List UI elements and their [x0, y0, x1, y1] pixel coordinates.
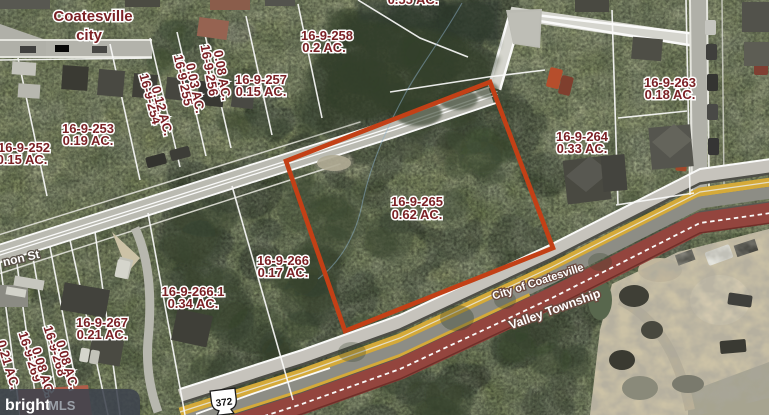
svg-text:0.33 AC.: 0.33 AC. — [557, 141, 608, 156]
svg-text:0.2 AC.: 0.2 AC. — [302, 40, 346, 55]
svg-text:0.19 AC.: 0.19 AC. — [63, 133, 114, 148]
svg-text:bright: bright — [5, 397, 51, 414]
svg-text:0.55 AC.: 0.55 AC. — [388, 0, 439, 7]
svg-text:city: city — [76, 27, 103, 44]
svg-text:MLS: MLS — [48, 398, 76, 413]
svg-text:0.62 AC.: 0.62 AC. — [392, 207, 443, 222]
svg-text:0.34 AC.: 0.34 AC. — [168, 296, 219, 311]
svg-text:Coatesville: Coatesville — [53, 8, 132, 25]
svg-text:0.17 AC.: 0.17 AC. — [258, 265, 309, 280]
svg-text:0.15 AC.: 0.15 AC. — [0, 152, 47, 167]
svg-text:0.21 AC.: 0.21 AC. — [77, 327, 128, 342]
svg-text:0.15 AC.: 0.15 AC. — [236, 84, 287, 99]
svg-text:372: 372 — [215, 396, 233, 409]
svg-text:0.18 AC.: 0.18 AC. — [645, 87, 696, 102]
